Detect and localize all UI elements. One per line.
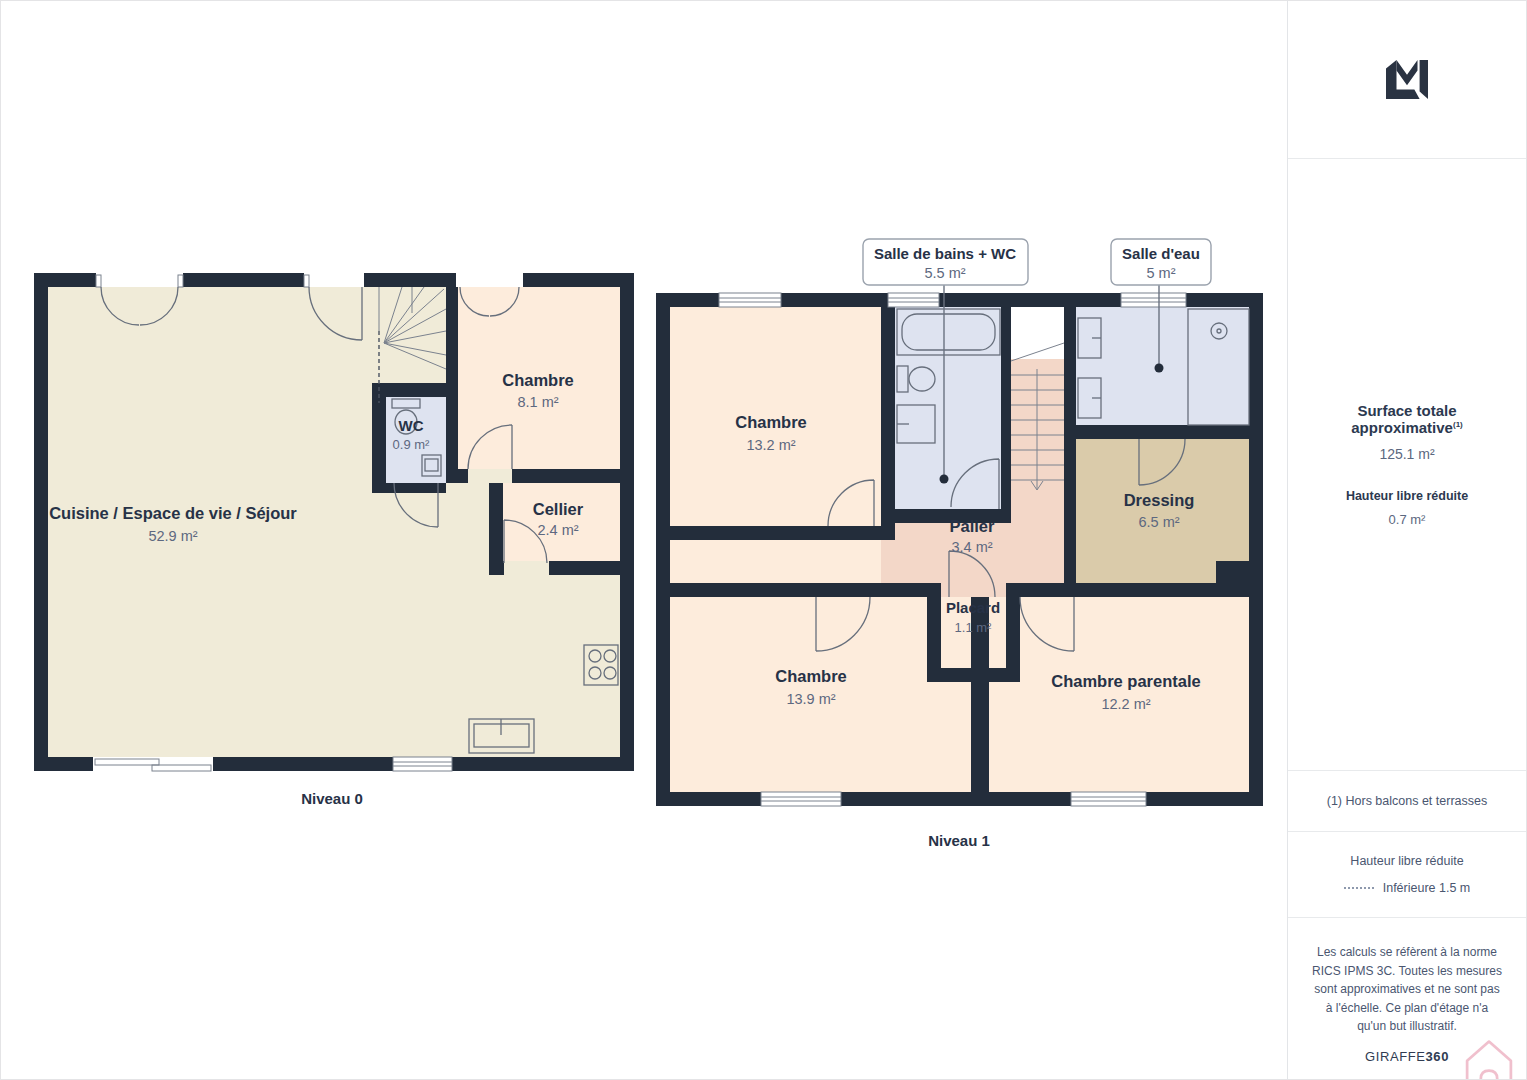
floorplan-page: Cuisine / Espace de vie / Séjour 52.9 m²…	[0, 0, 1527, 1080]
room-area: 12.2 m²	[1101, 696, 1150, 712]
footnote-marker: (1)	[1453, 420, 1463, 429]
surface-section: Surface totale approximative(1) 125.1 m²…	[1288, 159, 1526, 771]
room-area: 2.4 m²	[537, 522, 578, 538]
room-label: Cellier	[533, 500, 584, 518]
room-label: Cuisine / Espace de vie / Séjour	[49, 504, 297, 522]
room-label: Chambre	[775, 667, 847, 685]
room-area: 52.9 m²	[148, 528, 197, 544]
footnote-text: (1) Hors balcons et terrasses	[1327, 794, 1487, 808]
disclaimer-section: Les calculs se réfèrent à la norme RICS …	[1288, 918, 1526, 1079]
callout-label: Salle d'eau	[1122, 245, 1200, 262]
callout-area: 5.5 m²	[924, 265, 965, 281]
reduced-height-title: Hauteur libre réduite	[1346, 489, 1468, 503]
callout-label: Salle de bains + WC	[874, 245, 1016, 262]
room-label: Chambre	[735, 413, 807, 431]
room-area: 6.5 m²	[1138, 514, 1179, 530]
floor-plan-niveau-1: Salle de bains + WC 5.5 m² Salle d'eau 5…	[656, 233, 1266, 858]
legend-title: Hauteur libre réduite	[1350, 854, 1463, 868]
room-label: Palier	[950, 517, 996, 535]
surface-total-value: 125.1 m²	[1379, 446, 1434, 462]
room-area: 13.9 m²	[786, 691, 835, 707]
house-outline-icon	[1458, 1035, 1520, 1080]
room-area: 1.1 m²	[955, 620, 993, 635]
room-area: 3.4 m²	[951, 539, 992, 555]
floor-plan-niveau-0: Cuisine / Espace de vie / Séjour 52.9 m²…	[34, 273, 634, 813]
logo-section	[1288, 1, 1526, 159]
brand-logo: GIRAFFE360	[1365, 1049, 1449, 1064]
legend-label: Inférieure 1.5 m	[1383, 881, 1471, 895]
reduced-height-value: 0.7 m²	[1389, 512, 1426, 527]
footnote-section: (1) Hors balcons et terrasses	[1288, 771, 1526, 832]
floor-title: Niveau 0	[301, 790, 363, 807]
floor-title: Niveau 1	[928, 832, 990, 849]
room-area: 8.1 m²	[517, 394, 558, 410]
room-label: Chambre	[502, 371, 574, 389]
room-label: Chambre parentale	[1051, 672, 1200, 690]
dashed-line-sample	[1344, 887, 1374, 889]
room-area: 0.9 m²	[393, 437, 431, 452]
disclaimer-text: Les calculs se réfèrent à la norme RICS …	[1310, 943, 1504, 1036]
lm-logo-icon	[1383, 59, 1431, 101]
room-area: 13.2 m²	[746, 437, 795, 453]
room-label: WC	[399, 417, 424, 434]
room-label: Placard	[946, 599, 1000, 616]
legend-section: Hauteur libre réduite Inférieure 1.5 m	[1288, 832, 1526, 918]
callout-area: 5 m²	[1147, 265, 1176, 281]
info-sidebar: Surface totale approximative(1) 125.1 m²…	[1287, 1, 1526, 1079]
surface-total-title: Surface totale approximative(1)	[1306, 402, 1508, 436]
room-label: Dressing	[1124, 491, 1195, 509]
